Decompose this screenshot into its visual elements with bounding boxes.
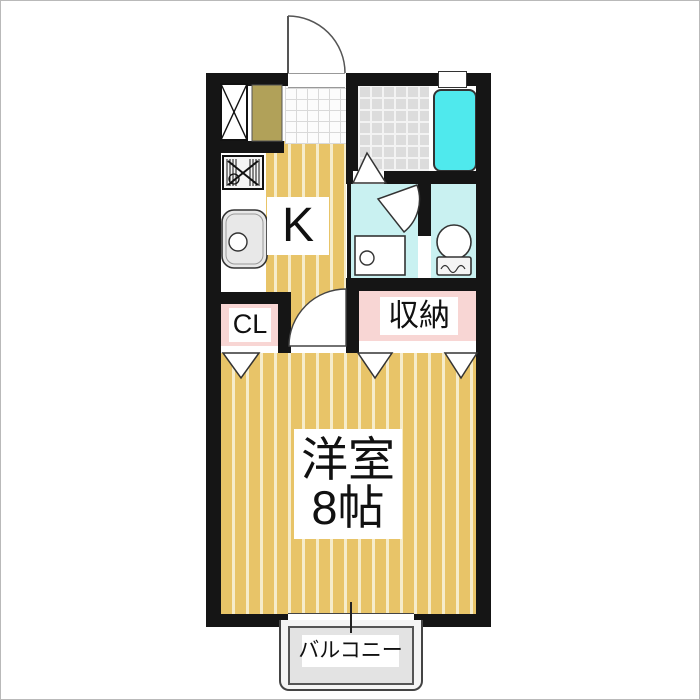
- kitchen-label-box: K: [267, 197, 329, 255]
- toilet-door: [418, 236, 431, 278]
- wall-washroom-bottom: [346, 278, 491, 291]
- kitchen-label: K: [282, 202, 314, 251]
- closet-threshold: [221, 346, 278, 353]
- wall-entry-bottom: [206, 141, 284, 153]
- washroom-floor: [351, 184, 418, 278]
- bath-door-threshold: [353, 171, 384, 184]
- pipe-shaft-icon: [221, 84, 247, 140]
- kitchen-counter: [221, 153, 266, 294]
- wall-left: [206, 73, 221, 627]
- wall-toilet-partition: [418, 184, 431, 236]
- bathtub: [433, 89, 477, 172]
- storage-threshold: [359, 341, 476, 353]
- balcony-label-box: バルコニー: [302, 635, 399, 667]
- closet-label: CL: [233, 311, 268, 339]
- wall-bath-left: [346, 73, 358, 184]
- floorplan-canvas: K CL 収納 洋室 8帖 バルコニー: [0, 0, 700, 700]
- bathroom-window: [438, 71, 467, 88]
- wall-bath-bottom: [384, 171, 491, 184]
- entrance-threshold: [288, 73, 345, 88]
- toilet-room-floor: [431, 184, 476, 278]
- closet-label-box: CL: [229, 308, 271, 342]
- main-room-label-line2: 8帖: [311, 484, 384, 532]
- balcony-label: バルコニー: [298, 640, 403, 661]
- bathroom-floor: [358, 86, 429, 171]
- room-door-threshold: [291, 340, 346, 353]
- storage-label: 収納: [388, 300, 450, 332]
- storage-label-box: 収納: [380, 297, 458, 335]
- wall-kitchen-washroom: [347, 184, 351, 278]
- wall-closet-right: [278, 292, 291, 353]
- wall-right: [476, 73, 491, 627]
- shoe-cabinet-icon: [252, 85, 282, 141]
- main-room-label-box: 洋室 8帖: [294, 429, 402, 539]
- entrance-door-icon: [288, 16, 345, 73]
- wall-storage-left: [346, 278, 359, 353]
- main-room-label-line1: 洋室: [301, 436, 395, 484]
- wall-top-right: [346, 73, 491, 86]
